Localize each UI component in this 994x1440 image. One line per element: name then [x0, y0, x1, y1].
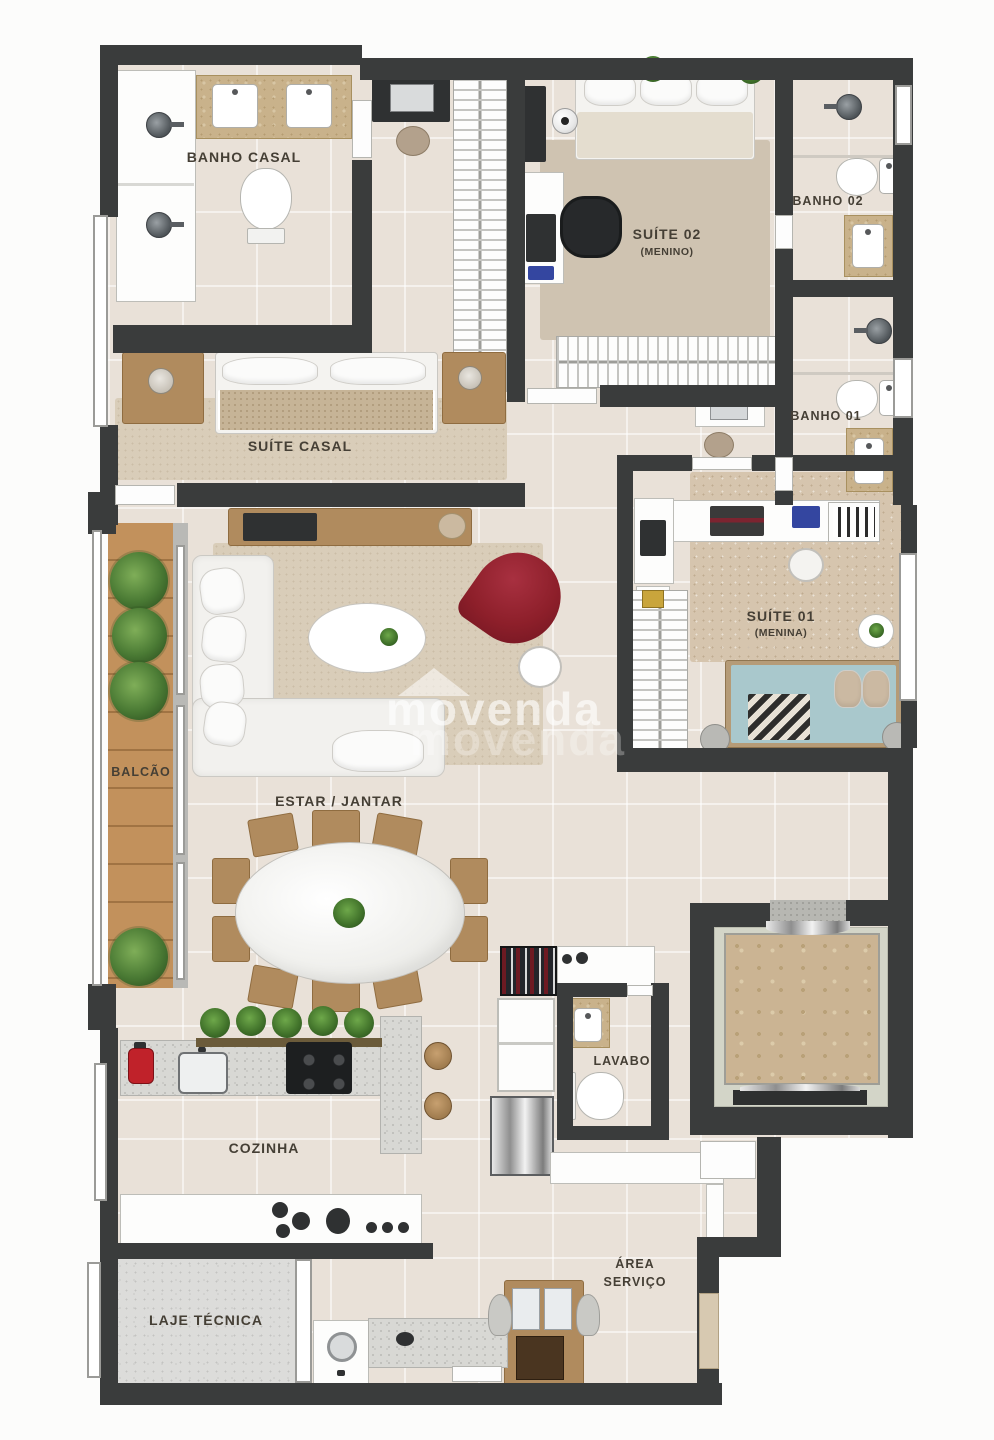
corridor-stool	[704, 432, 734, 458]
elevator-door-bottom-arc	[740, 1084, 860, 1091]
shower-head-1-icon	[146, 112, 172, 138]
servico-chair-right	[576, 1294, 600, 1336]
wall-suite-casal-bottom	[177, 483, 525, 507]
lavabo-sink	[574, 1008, 602, 1042]
wall-banho-separator	[775, 280, 913, 297]
sofa-pillow-2	[200, 614, 249, 664]
lamp-left-icon	[148, 368, 174, 394]
wall-lavabo-top	[573, 983, 627, 997]
wall-hall-left	[690, 903, 714, 1135]
elevator-door-top-arc	[766, 921, 850, 935]
elevator-door-bottom	[733, 1090, 867, 1105]
balcony-plant-4	[110, 928, 168, 986]
tv-screen	[390, 84, 434, 112]
sink-banho02	[852, 224, 884, 268]
pillow-casal-1	[222, 357, 318, 385]
wall-left-upper	[100, 45, 118, 217]
door-lavabo	[627, 985, 653, 996]
herb-4	[308, 1006, 338, 1036]
oven	[490, 1096, 554, 1176]
shower-glass-banho02	[780, 155, 893, 158]
espresso-set-3	[276, 1224, 290, 1238]
lamp-right-icon	[458, 366, 482, 390]
room-label-laje-tecnica: LAJE TÉCNICA	[149, 1312, 263, 1328]
shower-head-banho01-icon	[866, 318, 892, 344]
room-label-suite-01-sub: (MENINA)	[755, 627, 807, 639]
espresso-set-2	[292, 1212, 310, 1230]
herb-2	[236, 1006, 266, 1036]
sink-banho-casal-1	[212, 84, 258, 128]
wall-suite01-bottom	[617, 748, 903, 772]
shower-head-banho02-icon	[836, 94, 862, 120]
shower-divider	[118, 183, 194, 186]
balcony-glass-rail	[92, 530, 102, 986]
watermark-text-shadow: movenda	[410, 712, 626, 766]
closet-suite-01	[632, 590, 688, 752]
burner-knob-3	[398, 1222, 409, 1233]
balcony-door-pane-2	[176, 705, 185, 855]
wall-suite02-bottom	[600, 385, 780, 407]
closet-suite-02	[556, 336, 776, 388]
wall-right-lower	[888, 748, 913, 1138]
wall-banho-casal-bottom	[113, 325, 372, 353]
room-label-banho-02: BANHO 02	[792, 194, 863, 208]
room-label-suite-02: SUÍTE 02	[633, 226, 702, 242]
kettle	[326, 1208, 350, 1234]
window-banho-02	[895, 85, 912, 145]
wall-balcony-top-corner	[88, 492, 116, 534]
fridge-divider	[499, 1042, 553, 1045]
wall-banhos-left-top	[775, 58, 793, 215]
door-suite-01	[692, 457, 752, 470]
room-label-banho-casal: BANHO CASAL	[187, 149, 301, 165]
shower-arm-1	[170, 122, 184, 127]
wall-balcony-bottom-corner	[88, 984, 116, 1030]
balcony-plant-2	[112, 608, 167, 663]
toilet-banho02	[836, 158, 878, 196]
door-banho-02	[775, 215, 793, 249]
toilet-banho-casal	[240, 168, 292, 230]
wine-rack	[500, 946, 557, 996]
room-label-suite-01: SUÍTE 01	[747, 608, 816, 624]
wall-left-bottom	[100, 1245, 118, 1387]
espresso-set-1	[272, 1202, 288, 1218]
wall-lavabo-left	[557, 983, 573, 1140]
wall-laje-top	[100, 1243, 433, 1259]
pillow-casal-2	[330, 357, 426, 385]
shower-head-2-icon	[146, 212, 172, 238]
balcony-door-pane-3	[176, 862, 185, 980]
placemat-1	[512, 1288, 540, 1330]
stool-suite-casal	[396, 126, 430, 156]
toilet-tank-banho-casal	[247, 228, 285, 244]
floor-plan: BANHO CASAL SUÍTE CASAL SUÍTE 02 (MENINO…	[0, 0, 994, 1440]
room-label-area-servico-2: SERVIÇO	[603, 1275, 666, 1289]
lavabo-toilet	[576, 1072, 624, 1120]
closet-suite-casal	[453, 66, 507, 392]
washer-door	[327, 1332, 357, 1362]
wall-banho-casal-right	[352, 160, 372, 325]
servico-tray	[516, 1336, 564, 1380]
shower-arm-banho01	[854, 328, 868, 333]
fire-extinguisher	[128, 1048, 154, 1084]
laundry-counter	[368, 1318, 508, 1368]
pillow-s01-2	[862, 670, 890, 708]
laje-divider	[295, 1259, 312, 1383]
bar-counter-items	[562, 954, 572, 964]
chair-suite01	[788, 548, 824, 582]
kitchen-island-return	[380, 1016, 422, 1154]
shower-arm-2	[170, 222, 184, 227]
blanket-s02	[577, 112, 753, 158]
balcony-door-pane-1	[176, 545, 185, 695]
door-suite-casal	[115, 485, 175, 505]
door-banho-casal	[352, 100, 372, 158]
herb-3	[272, 1008, 302, 1038]
wall-bottom	[100, 1383, 722, 1405]
wall-closet-suite-casal	[507, 58, 525, 402]
bar-counter-items-2	[576, 952, 588, 964]
desk-chair-s02	[560, 196, 622, 258]
door-banho-01	[775, 457, 793, 491]
wall-top-main	[360, 58, 895, 80]
window-laje-left	[87, 1262, 101, 1378]
soccer-ball-icon	[552, 108, 578, 134]
wall-lavabo-bottom	[557, 1126, 669, 1140]
wall-top-left	[100, 45, 362, 65]
fridge	[497, 998, 555, 1092]
room-label-cozinha: COZINHA	[229, 1140, 300, 1156]
room-label-banho-01: BANHO 01	[790, 409, 861, 423]
coffee-table-plant	[380, 628, 398, 646]
wall-hall-bottom	[690, 1107, 913, 1135]
window-banho-01	[893, 358, 913, 418]
shower-tray-banho-casal	[116, 70, 196, 302]
wall-servico-step	[697, 1237, 781, 1257]
room-label-balcao: BALCÃO	[111, 765, 170, 779]
room-label-lavabo: LAVABO	[594, 1054, 651, 1068]
sideboard-decor	[243, 513, 317, 541]
plant-suite01	[869, 623, 884, 638]
laptop-suite01	[640, 520, 666, 556]
kitchen-back-counter	[120, 1194, 422, 1244]
blanket-zigzag-suite01	[748, 694, 810, 740]
herb-1	[200, 1008, 230, 1038]
room-label-area-servico-1: ÁREA	[615, 1257, 654, 1271]
entry-door	[700, 1141, 756, 1179]
clothes-rail-suite01	[828, 502, 880, 542]
burner-knob-2	[382, 1222, 393, 1233]
gold-item-suite01	[642, 590, 664, 608]
door-suite-02	[527, 388, 597, 404]
blue-box-suite01	[792, 506, 820, 528]
shower-glass-banho01	[780, 372, 893, 375]
room-label-estar-jantar: ESTAR / JANTAR	[275, 793, 403, 809]
balcony-plant-3	[110, 662, 168, 720]
wall-suite01-top-c	[793, 455, 903, 471]
laptop-s02	[526, 214, 556, 262]
window-suite-01	[899, 553, 917, 701]
printer-suite01	[710, 506, 764, 536]
room-label-suite-02-sub: (MENINO)	[641, 246, 694, 258]
laundry-bowl	[396, 1332, 414, 1346]
dining-centerpiece	[333, 898, 365, 928]
sideboard-bowl	[438, 513, 466, 539]
window-kitchen-left	[94, 1063, 107, 1201]
wall-lavabo-right	[651, 983, 669, 1140]
bed-runner-casal	[218, 390, 435, 430]
elevator-marble-floor	[724, 933, 880, 1085]
kitchen-stool-2	[424, 1092, 452, 1120]
coffee-table	[308, 603, 426, 673]
wall-banhos-left-low	[775, 491, 793, 505]
cooktop	[286, 1042, 352, 1094]
herb-5	[344, 1008, 374, 1038]
laundry-sink	[452, 1366, 502, 1382]
wall-suite01-top-a	[617, 455, 692, 471]
kitchen-sink	[178, 1052, 228, 1094]
sink-banho-casal-2	[286, 84, 332, 128]
blue-item-s02	[528, 266, 554, 280]
kitchen-island	[120, 1040, 420, 1096]
washer-knob	[337, 1370, 345, 1376]
door-area-servico	[699, 1293, 719, 1369]
window-left-suite-casal	[93, 215, 108, 427]
wall-hall-top-right	[845, 900, 903, 926]
servico-cabinet-top	[550, 1152, 724, 1184]
servico-chair-left	[488, 1294, 512, 1336]
balcony-plant-1	[110, 552, 168, 610]
kitchen-stool-1	[424, 1042, 452, 1070]
placemat-2	[544, 1288, 572, 1330]
burner-knob-1	[366, 1222, 377, 1233]
pillow-s01-1	[834, 670, 862, 708]
room-label-suite-casal: SUÍTE CASAL	[248, 438, 352, 454]
shower-arm-banho02	[824, 104, 838, 109]
